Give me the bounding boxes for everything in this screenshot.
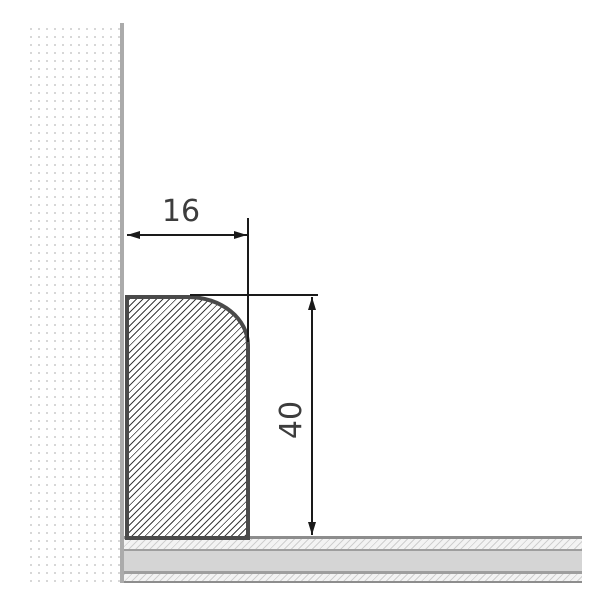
width-dimension-label: 16: [121, 196, 241, 228]
wall-edge-line: [120, 23, 124, 583]
diagram-canvas: 16 40: [0, 0, 604, 604]
width-dimension-line: [127, 234, 247, 236]
height-arrow-down-icon: [308, 522, 316, 535]
width-arrow-right-icon: [234, 231, 247, 239]
height-dimension-line: [311, 297, 313, 535]
width-extension-line: [247, 218, 249, 342]
floor-bottom-border: [124, 581, 582, 584]
skirting-profile-section: [125, 295, 250, 540]
height-dimension-label: 40: [277, 380, 307, 460]
wall-dotted-surface: [25, 23, 120, 583]
floor-assembly: [124, 536, 582, 583]
height-extension-line: [190, 294, 318, 296]
floor-core-layer: [124, 551, 582, 571]
floor-bottom-hatched-layer: [124, 574, 582, 581]
height-arrow-up-icon: [308, 297, 316, 310]
width-arrow-left-icon: [127, 231, 140, 239]
floor-top-hatched-layer: [124, 539, 582, 549]
